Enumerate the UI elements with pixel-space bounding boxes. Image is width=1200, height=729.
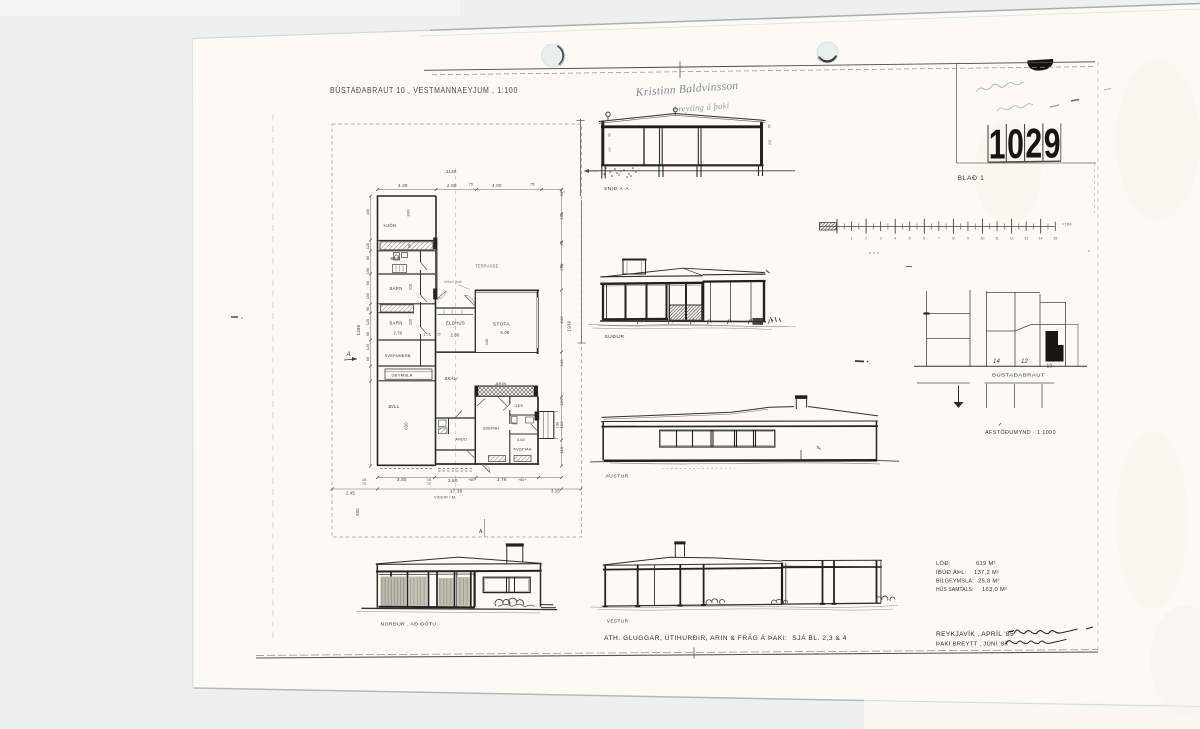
svg-text:ELDHÚS: ELDHÚS	[446, 321, 465, 326]
svg-text:ANDD.: ANDD.	[456, 438, 469, 442]
svg-text:242: 242	[768, 139, 772, 145]
svg-text:BÚSTAÐABRAUT 10 , VESTMANNAEYJ: BÚSTAÐABRAUT 10 , VESTMANNAEYJUM , 1:100	[330, 85, 518, 95]
svg-text:600: 600	[404, 422, 409, 430]
svg-text:1130: 1130	[446, 169, 457, 174]
svg-text:163,0 M²: 163,0 M²	[982, 587, 1007, 593]
svg-text:400: 400	[366, 209, 370, 215]
svg-text:240: 240	[559, 359, 564, 367]
svg-text:3.76: 3.76	[497, 477, 507, 482]
svg-text:BÍLL: BÍLL	[389, 403, 400, 410]
svg-text:SNIÐ A-A: SNIÐ A-A	[604, 186, 630, 192]
svg-text:BARN: BARN	[390, 286, 403, 291]
svg-text:12: 12	[1021, 359, 1029, 365]
svg-text:AFSTÖÐUMYND · 1:1000: AFSTÖÐUMYND · 1:1000	[985, 429, 1056, 436]
svg-text:120: 120	[366, 319, 370, 325]
svg-text:619 M²: 619 M²	[976, 561, 996, 567]
svg-text:25,8 M²: 25,8 M²	[978, 579, 1000, 585]
svg-text:GES: GES	[515, 404, 524, 408]
svg-text:3: 3	[880, 237, 882, 241]
svg-text:70: 70	[437, 333, 441, 337]
svg-text:14: 14	[1039, 237, 1043, 241]
svg-text:12: 12	[1010, 237, 1014, 241]
svg-text:8: 8	[952, 237, 954, 241]
svg-text:216: 216	[409, 284, 413, 290]
svg-text:STOFA: STOFA	[493, 322, 511, 327]
svg-text:6.06: 6.06	[501, 330, 510, 335]
svg-text:90: 90	[366, 307, 370, 311]
svg-text:10: 10	[1047, 364, 1053, 370]
svg-text:1480: 1480	[356, 324, 361, 335]
svg-text:130: 130	[556, 422, 560, 429]
svg-text:39: 39	[608, 133, 612, 137]
svg-text:300: 300	[406, 209, 411, 217]
svg-text:1.75: 1.75	[424, 333, 431, 337]
svg-text:SUÐUR: SUÐUR	[605, 334, 625, 340]
svg-text:ÍBÚÐ ÁÞL:: ÍBÚÐ ÁÞL:	[936, 569, 967, 576]
svg-text:70: 70	[362, 482, 366, 486]
svg-text:60: 60	[366, 256, 370, 260]
svg-text:ARIN: ARIN	[496, 381, 507, 386]
svg-text:3.80: 3.80	[397, 477, 407, 482]
svg-text:SVEFNHERB: SVEFNHERB	[385, 353, 411, 358]
svg-text:2.60: 2.60	[447, 183, 457, 188]
svg-text:9: 9	[1044, 120, 1061, 167]
svg-text:A: A	[346, 352, 351, 358]
svg-text:150: 150	[366, 293, 370, 299]
svg-text:220: 220	[559, 398, 564, 406]
svg-text:295: 295	[559, 212, 564, 220]
svg-text:BÚSTAÐABRAUT: BÚSTAÐABRAUT	[992, 373, 1045, 378]
svg-text:15: 15	[1053, 237, 1057, 241]
svg-text:2.45: 2.45	[346, 491, 355, 496]
svg-text:2: 2	[865, 237, 867, 241]
svg-text:190: 190	[366, 268, 370, 274]
svg-text:130: 130	[559, 421, 564, 429]
svg-text:60: 60	[366, 357, 370, 361]
svg-text:11: 11	[995, 237, 999, 241]
svg-text:VESTUR: VESTUR	[607, 619, 629, 624]
svg-text:600: 600	[355, 508, 360, 516]
svg-text:137,2 M²: 137,2 M²	[974, 570, 999, 576]
svg-text:HJÓN: HJÓN	[384, 223, 397, 228]
svg-text:TERRASSE: TERRASSE	[476, 264, 499, 269]
svg-text:1: 1	[851, 237, 853, 241]
svg-text:BÍLGEYMSLA:: BÍLGEYMSLA:	[936, 578, 974, 585]
svg-text:4.00: 4.00	[492, 183, 502, 188]
svg-text:295: 295	[559, 263, 564, 271]
svg-text:ATH. GLUGGAR, ÚTIHURÐIR, ARIN: ATH. GLUGGAR, ÚTIHURÐIR, ARIN & FRÁG Á Þ…	[604, 635, 847, 642]
svg-text:17.30: 17.30	[450, 489, 463, 494]
svg-text:6: 6	[923, 237, 925, 241]
svg-text:65: 65	[768, 124, 772, 128]
svg-text:+60+: +60+	[518, 478, 527, 482]
svg-text:3.15: 3.15	[551, 489, 560, 494]
svg-text:66: 66	[408, 244, 412, 248]
svg-text:60: 60	[366, 332, 370, 336]
svg-text:AUSTUR: AUSTUR	[606, 474, 629, 480]
svg-text:NORÐUR , AÐ GÖTU: NORÐUR , AÐ GÖTU	[381, 621, 437, 627]
svg-text:28: 28	[559, 191, 564, 196]
svg-text:SVEFNH: SVEFNH	[483, 427, 499, 431]
svg-text:60: 60	[366, 281, 370, 285]
svg-text:65: 65	[559, 240, 564, 245]
svg-text:ÞVOTTAH: ÞVOTTAH	[514, 448, 532, 452]
svg-text:440: 440	[559, 316, 564, 324]
svg-text:14: 14	[993, 359, 1001, 365]
svg-text:440: 440	[485, 339, 489, 346]
svg-text:216: 216	[409, 319, 413, 325]
svg-text:SKÁLI: SKÁLI	[445, 376, 459, 381]
svg-text:GEYMSLA: GEYMSLA	[392, 373, 413, 378]
svg-text:120: 120	[366, 344, 370, 350]
svg-text:110: 110	[559, 446, 564, 454]
svg-text:4.30: 4.30	[398, 183, 408, 188]
svg-text:75: 75	[530, 183, 535, 187]
svg-text:niðurf. þak: niðurf. þak	[444, 280, 462, 284]
svg-text:≈100: ≈100	[1062, 222, 1072, 227]
svg-text:10: 10	[981, 237, 985, 241]
svg-text:2.80: 2.80	[451, 333, 460, 338]
svg-text:5: 5	[909, 237, 911, 241]
svg-text:75: 75	[469, 183, 474, 187]
svg-text:1: 1	[989, 120, 1006, 167]
svg-text:70: 70	[427, 482, 431, 486]
svg-text:BARN: BARN	[390, 321, 403, 326]
svg-text:1930: 1930	[567, 320, 572, 331]
svg-text:4.60: 4.60	[517, 438, 525, 442]
svg-text:2: 2	[1025, 120, 1042, 167]
svg-text:HÚS SAMTALS:: HÚS SAMTALS:	[936, 586, 974, 593]
svg-text:VÍDDIR Í M.: VÍDDIR Í M.	[434, 496, 456, 500]
svg-text:120: 120	[366, 243, 370, 249]
svg-text:ÞAKI BREYTT , JÚNÍ '86: ÞAKI BREYTT , JÚNÍ '86	[936, 641, 1008, 648]
svg-text:REYKJAVÍK , APRÍL '85: REYKJAVÍK , APRÍL '85	[936, 629, 1014, 638]
svg-text:242: 242	[608, 147, 612, 152]
svg-text:¹8: ¹8	[817, 446, 820, 450]
svg-text:2.70: 2.70	[394, 331, 403, 336]
svg-text:4: 4	[894, 237, 896, 241]
svg-text:0: 0	[1007, 120, 1024, 167]
svg-text:9: 9	[967, 237, 969, 241]
svg-text:2.50: 2.50	[448, 478, 458, 483]
svg-text:+60+: +60+	[468, 478, 477, 482]
svg-text:LÓÐ:: LÓÐ:	[936, 560, 951, 567]
svg-text:13: 13	[1024, 237, 1028, 241]
svg-text:7: 7	[938, 237, 940, 241]
svg-text:BLAÐ 1: BLAÐ 1	[958, 175, 985, 182]
